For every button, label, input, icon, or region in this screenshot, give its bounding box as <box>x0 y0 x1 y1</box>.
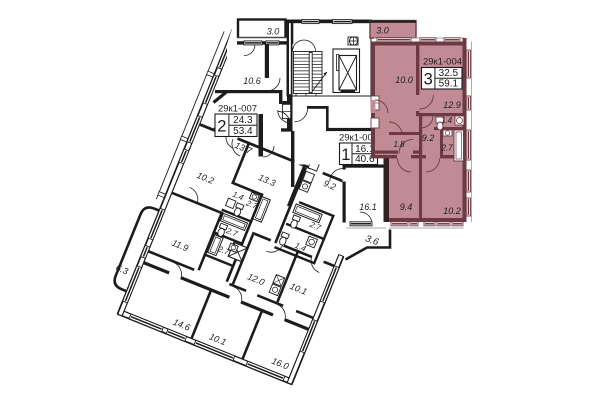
svg-text:2.7: 2.7 <box>440 144 453 153</box>
svg-text:10.2: 10.2 <box>443 206 461 216</box>
svg-text:1: 1 <box>341 146 350 164</box>
svg-text:9.2: 9.2 <box>422 133 435 143</box>
svg-text:10.6: 10.6 <box>243 76 261 86</box>
svg-text:3.0: 3.0 <box>267 27 280 37</box>
svg-text:2: 2 <box>217 117 226 135</box>
svg-text:59.1: 59.1 <box>439 79 459 90</box>
svg-text:12.9: 12.9 <box>443 100 461 110</box>
svg-text:10.0: 10.0 <box>395 75 413 85</box>
svg-text:1.8: 1.8 <box>393 140 405 149</box>
svg-text:3: 3 <box>424 71 433 89</box>
svg-text:32.5: 32.5 <box>439 68 459 79</box>
svg-text:53.4: 53.4 <box>233 126 253 137</box>
svg-text:9.4: 9.4 <box>400 202 413 212</box>
svg-text:24.3: 24.3 <box>233 115 253 126</box>
svg-text:29к1-007: 29к1-007 <box>218 104 257 115</box>
svg-text:3.0: 3.0 <box>376 26 389 36</box>
svg-text:29к1-004: 29к1-004 <box>423 57 462 68</box>
svg-text:1.4: 1.4 <box>441 116 453 125</box>
svg-text:16.1: 16.1 <box>359 202 377 212</box>
